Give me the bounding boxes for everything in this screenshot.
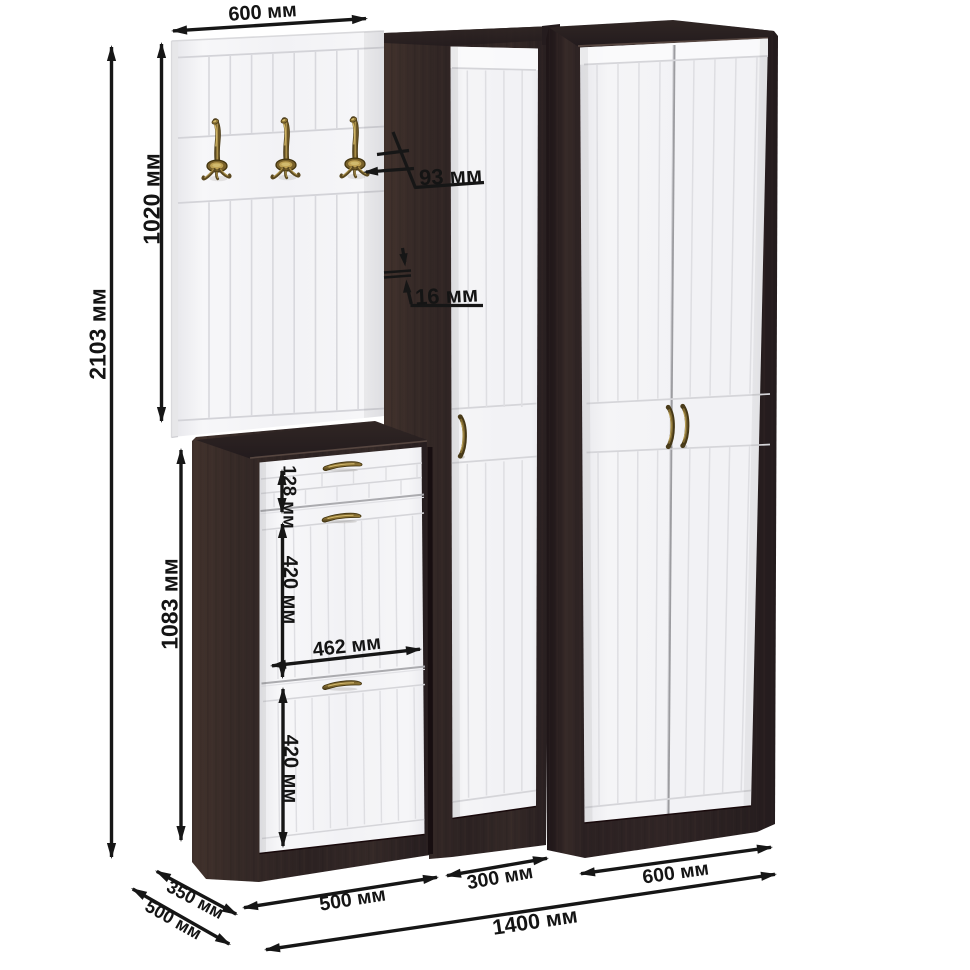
svg-text:16 мм: 16 мм	[414, 281, 478, 309]
svg-text:128 мм: 128 мм	[280, 465, 301, 528]
svg-text:1083 мм: 1083 мм	[157, 558, 183, 650]
svg-text:420 мм: 420 мм	[279, 556, 301, 625]
svg-text:93 мм: 93 мм	[418, 162, 482, 190]
svg-text:420 мм: 420 мм	[280, 735, 302, 804]
svg-text:1020 мм: 1020 мм	[139, 153, 165, 245]
svg-text:2103 мм: 2103 мм	[85, 288, 111, 380]
